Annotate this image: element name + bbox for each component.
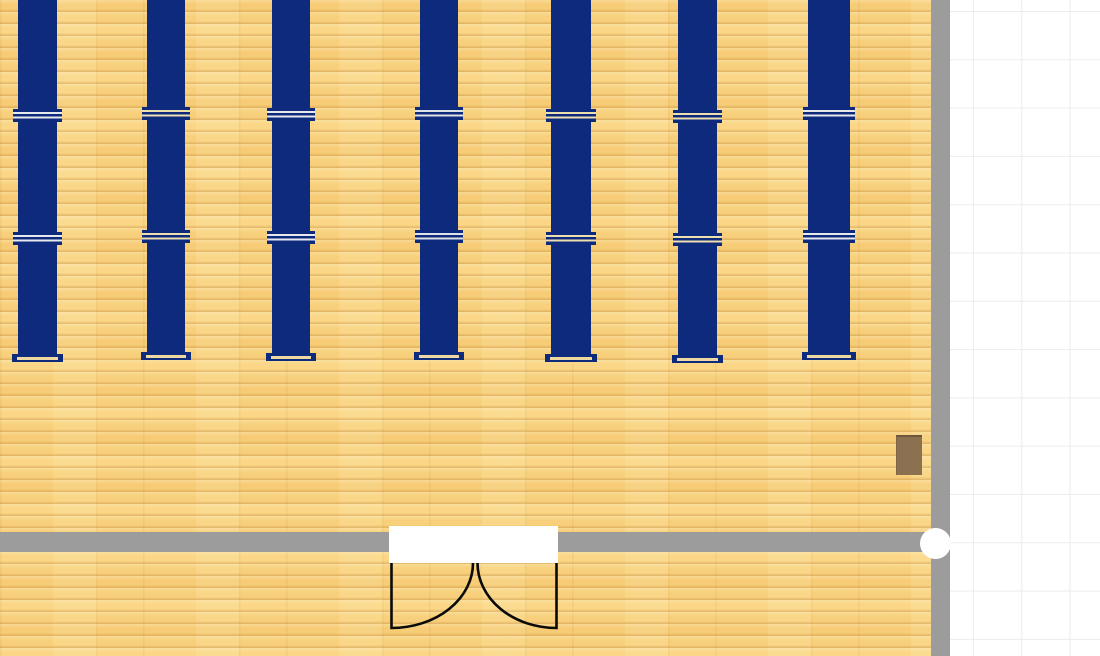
bench-stripe [550, 357, 592, 360]
table-junction-bar[interactable] [803, 230, 855, 243]
wall-endpoint-handle[interactable] [920, 528, 951, 559]
table-junction-bar[interactable] [673, 110, 722, 123]
table-junction-bar[interactable] [546, 109, 596, 122]
table-junction-bar[interactable] [142, 230, 190, 243]
cabinet[interactable] [896, 435, 922, 475]
table-column[interactable] [272, 0, 310, 353]
table-column[interactable] [18, 0, 57, 354]
table-end-bench[interactable] [414, 352, 464, 360]
table-column[interactable] [551, 0, 591, 354]
table-junction-bar[interactable] [803, 107, 855, 120]
table-junction-bar[interactable] [142, 107, 190, 120]
door-opening [389, 526, 558, 563]
table-end-bench[interactable] [545, 354, 597, 362]
table-end-bench[interactable] [672, 355, 723, 363]
table-junction-bar[interactable] [415, 107, 463, 120]
table-junction-bar[interactable] [13, 109, 62, 122]
bench-stripe [677, 358, 718, 361]
table-end-bench[interactable] [266, 353, 316, 361]
door-left-leaf-swing [392, 563, 474, 628]
table-end-bench[interactable] [12, 354, 63, 362]
table-end-bench[interactable] [141, 352, 191, 360]
table-junction-bar[interactable] [267, 108, 315, 121]
table-junction-bar[interactable] [673, 233, 722, 246]
door-right-leaf-swing [478, 563, 557, 628]
bench-stripe [807, 355, 851, 358]
table-junction-bar[interactable] [415, 230, 463, 243]
plan-canvas [0, 0, 1100, 656]
bench-stripe [271, 356, 311, 359]
table-junction-bar[interactable] [13, 232, 62, 245]
table-column[interactable] [420, 0, 458, 352]
bench-stripe [419, 355, 459, 358]
bench-stripe [146, 355, 186, 358]
double-door[interactable] [380, 520, 580, 635]
table-column[interactable] [808, 0, 850, 352]
table-column[interactable] [678, 0, 717, 355]
table-junction-bar[interactable] [267, 231, 315, 244]
table-end-bench[interactable] [802, 352, 856, 360]
table-junction-bar[interactable] [546, 232, 596, 245]
bench-stripe [17, 357, 58, 360]
table-column[interactable] [147, 0, 185, 352]
